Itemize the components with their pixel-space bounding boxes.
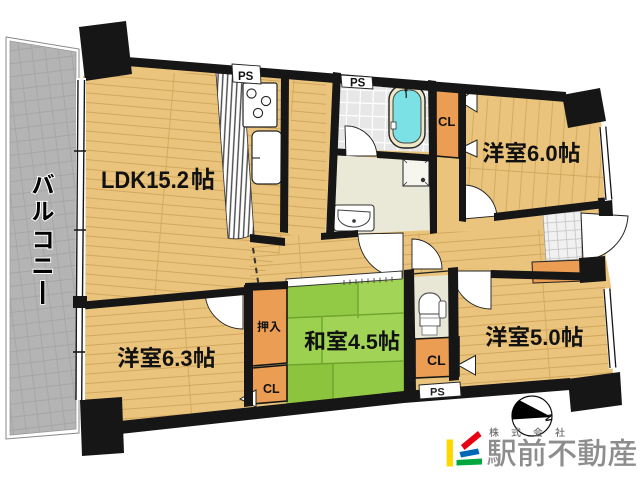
svg-text:PS: PS	[238, 71, 254, 83]
svg-text:6.3: 6.3	[162, 346, 193, 371]
svg-text:CL: CL	[263, 382, 280, 396]
svg-text:4.5: 4.5	[348, 330, 378, 354]
svg-text:5.0: 5.0	[530, 325, 561, 350]
svg-text:PS: PS	[430, 387, 445, 399]
svg-text:CL: CL	[427, 352, 446, 368]
svg-text:6.0: 6.0	[527, 141, 558, 166]
svg-text:LDK15.2: LDK15.2	[101, 167, 189, 194]
svg-text:PS: PS	[350, 78, 366, 90]
svg-text:CL: CL	[438, 114, 455, 129]
